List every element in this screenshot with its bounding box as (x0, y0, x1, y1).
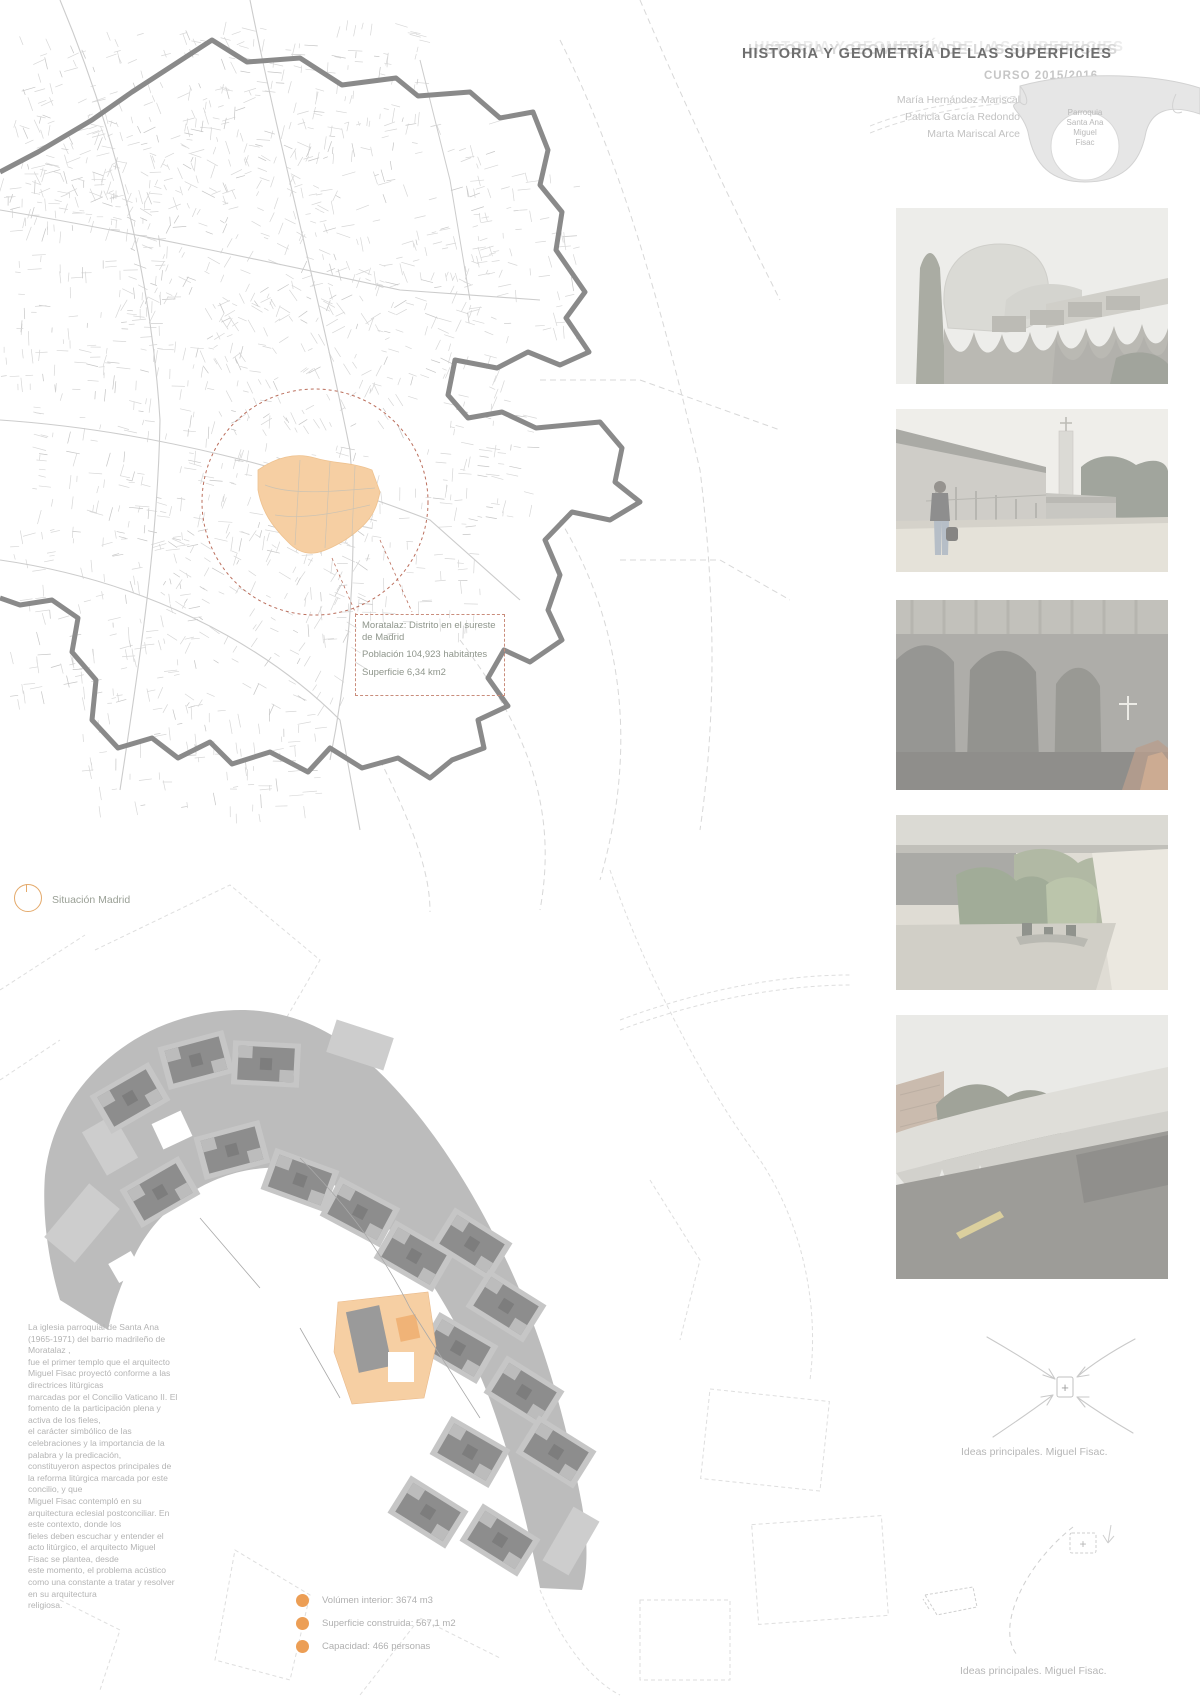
legend-label-capacity: Capacidad: 466 personas (322, 1641, 430, 1652)
orange-dot-icon (296, 1617, 309, 1630)
legend-row-volume: Volúmen interior: 3674 m3 (296, 1594, 456, 1607)
svg-text:+: + (1061, 1380, 1069, 1395)
madrid-boundary-line (0, 40, 640, 778)
svg-text:+: + (1079, 1537, 1086, 1551)
project-description: La iglesia parroquial de Santa Ana (1965… (28, 1322, 186, 1612)
orange-dot-icon (296, 1594, 309, 1607)
photo-garden-under-canopy (896, 815, 1168, 990)
photo-interior-arches-crucifix (896, 600, 1168, 790)
photo-church-exterior-wavy-roof (896, 208, 1168, 384)
poster-canvas: Moratalaz: Distrito en el sureste de Mad… (0, 0, 1200, 1696)
converging-arrows-sketch: + (975, 1333, 1145, 1441)
district-info-line3: Superficie 6,34 km2 (362, 667, 498, 679)
roof-section-sketch (870, 58, 1200, 188)
legend-label-surface: Superficie construida: 567,1 m2 (322, 1618, 456, 1629)
district-info-line2: Población 104,923 habitantes (362, 649, 498, 661)
orange-dot-icon (296, 1640, 309, 1653)
photo-wavy-roof-underside (896, 1015, 1168, 1279)
district-info-line1: Moratalaz: Distrito en el sureste de Mad… (362, 620, 498, 643)
sketch-caption-2: Ideas principales. Miguel Fisac. (960, 1665, 1106, 1677)
legend-label-volume: Volúmen interior: 3674 m3 (322, 1595, 433, 1606)
metrics-legend: Volúmen interior: 3674 m3 Superficie con… (296, 1594, 456, 1663)
project-label: Parroquia Santa Ana Miguel Fisac (1040, 108, 1130, 148)
sketch-caption-1: Ideas principales. Miguel Fisac. (961, 1446, 1107, 1458)
church-parcel (334, 1292, 436, 1404)
moratalaz-district-shape (258, 456, 380, 554)
legend-row-capacity: Capacidad: 466 personas (296, 1640, 456, 1653)
legend-row-surface: Superficie construida: 567,1 m2 (296, 1617, 456, 1630)
district-info-box: Moratalaz: Distrito en el sureste de Mad… (355, 614, 505, 696)
curve-plan-sketch: + (915, 1525, 1165, 1660)
photo-courtyard-bell-tower (896, 409, 1168, 572)
madrid-situation-map (0, 0, 790, 915)
